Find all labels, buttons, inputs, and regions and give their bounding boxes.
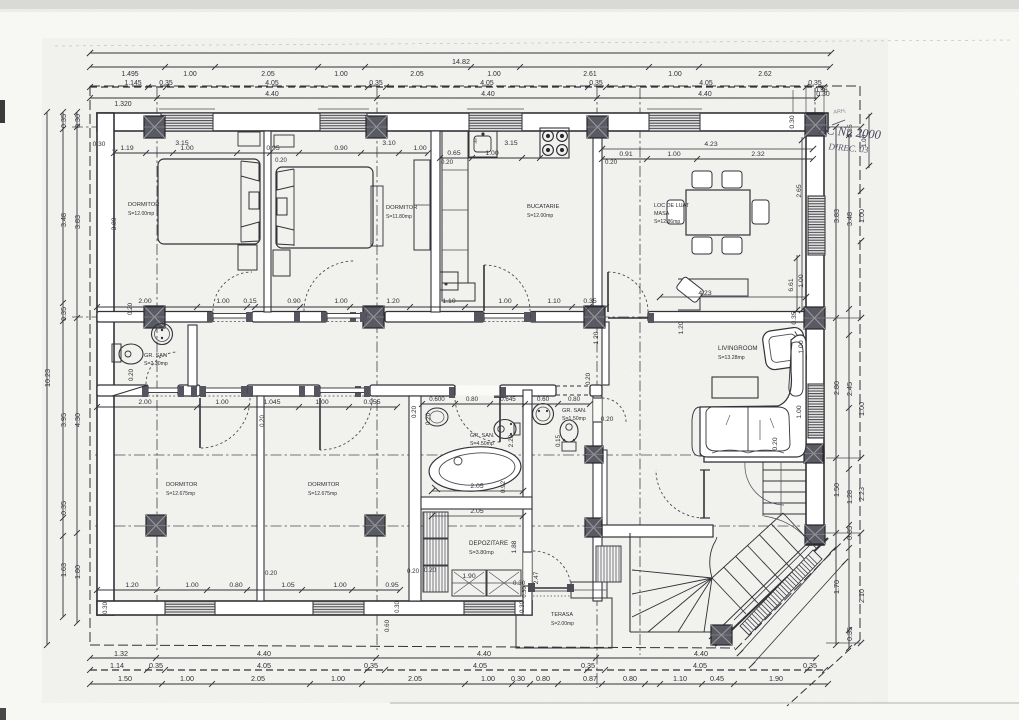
- svg-text:3.48: 3.48: [59, 213, 68, 227]
- svg-text:0.20: 0.20: [275, 158, 287, 164]
- svg-text:1.00: 1.00: [331, 674, 345, 683]
- svg-text:4.23: 4.23: [704, 141, 717, 148]
- svg-text:0.20: 0.20: [585, 372, 592, 385]
- svg-text:S=2.00mp: S=2.00mp: [551, 621, 574, 627]
- svg-text:1.10: 1.10: [673, 674, 687, 683]
- svg-text:2.23: 2.23: [857, 487, 866, 501]
- svg-text:4.05: 4.05: [480, 80, 494, 87]
- svg-text:1.80: 1.80: [73, 565, 82, 579]
- svg-text:0.30: 0.30: [102, 601, 109, 614]
- svg-text:DORMITOR: DORMITOR: [308, 482, 339, 488]
- svg-text:1.28: 1.28: [845, 490, 854, 504]
- svg-text:1.32: 1.32: [114, 649, 128, 658]
- svg-text:2.05: 2.05: [410, 71, 424, 78]
- svg-text:LOC DE LUAT: LOC DE LUAT: [654, 203, 690, 209]
- svg-text:0.30: 0.30: [395, 601, 401, 613]
- svg-text:2.45: 2.45: [845, 382, 854, 396]
- svg-text:4.05: 4.05: [473, 661, 487, 670]
- svg-text:1.320: 1.320: [114, 101, 131, 108]
- svg-text:0.80: 0.80: [466, 396, 479, 403]
- svg-text:0.30: 0.30: [511, 674, 525, 683]
- svg-text:0.91: 0.91: [619, 151, 632, 158]
- svg-text:GR. SAN.: GR. SAN.: [470, 433, 495, 439]
- svg-text:1.00: 1.00: [334, 298, 347, 305]
- svg-text:2.05: 2.05: [470, 508, 483, 515]
- svg-text:1.00: 1.00: [185, 582, 198, 589]
- svg-text:2.32: 2.32: [751, 151, 764, 158]
- svg-text:0.15: 0.15: [243, 298, 256, 305]
- svg-text:DORMITOR: DORMITOR: [128, 202, 159, 208]
- svg-text:0.45: 0.45: [710, 674, 724, 683]
- svg-text:0.35: 0.35: [583, 298, 596, 305]
- svg-text:6.61: 6.61: [788, 278, 795, 291]
- svg-text:3.15: 3.15: [175, 140, 188, 147]
- svg-text:S=12.675mp: S=12.675mp: [308, 491, 337, 497]
- svg-text:S=12.675mp: S=12.675mp: [166, 491, 195, 497]
- svg-text:LIVINGROOM: LIVINGROOM: [718, 345, 758, 352]
- svg-text:1.00: 1.00: [798, 274, 805, 287]
- svg-text:DEPOZITARE: DEPOZITARE: [469, 540, 508, 547]
- svg-text:14.82: 14.82: [452, 57, 470, 66]
- svg-text:1.05: 1.05: [281, 582, 294, 589]
- svg-text:BUCATARIE: BUCATARIE: [527, 204, 559, 210]
- svg-text:1.145: 1.145: [124, 80, 141, 87]
- svg-text:S=12.00mp: S=12.00mp: [128, 211, 154, 217]
- svg-text:0.80: 0.80: [536, 674, 550, 683]
- svg-text:0.30: 0.30: [93, 141, 106, 148]
- svg-text:1.20: 1.20: [125, 582, 138, 589]
- svg-text:2.61: 2.61: [583, 71, 597, 78]
- svg-text:0.35: 0.35: [59, 307, 68, 321]
- svg-text:0.600: 0.600: [429, 396, 445, 403]
- svg-text:0.35: 0.35: [589, 80, 603, 87]
- svg-text:10.23: 10.23: [43, 369, 52, 387]
- svg-text:0.20: 0.20: [425, 412, 432, 425]
- svg-text:0.30: 0.30: [522, 586, 528, 597]
- svg-text:TERASA: TERASA: [551, 612, 573, 618]
- svg-text:S=13.28mp: S=13.28mp: [718, 355, 745, 361]
- svg-text:1.10: 1.10: [442, 298, 455, 305]
- svg-text:2.05: 2.05: [408, 674, 422, 683]
- svg-text:2.00: 2.00: [138, 399, 151, 406]
- svg-text:4.23: 4.23: [698, 290, 711, 297]
- svg-text:1.495: 1.495: [121, 71, 138, 78]
- svg-text:0.20: 0.20: [601, 416, 614, 423]
- svg-text:0.35: 0.35: [803, 661, 817, 670]
- svg-text:0.35: 0.35: [59, 501, 68, 515]
- svg-text:0.35: 0.35: [59, 114, 68, 128]
- svg-text:S=4.50mp: S=4.50mp: [470, 441, 494, 447]
- svg-text:0.20: 0.20: [128, 368, 135, 381]
- svg-text:0.36: 0.36: [814, 87, 827, 94]
- svg-text:MASA: MASA: [654, 211, 670, 217]
- svg-text:0.30: 0.30: [519, 600, 526, 613]
- svg-text:DORMITOR: DORMITOR: [166, 482, 197, 488]
- svg-text:0.20: 0.20: [127, 302, 134, 315]
- svg-text:S=2.30mp: S=2.30mp: [144, 361, 168, 367]
- svg-text:1.14: 1.14: [110, 661, 124, 670]
- svg-text:1.00: 1.00: [180, 674, 194, 683]
- svg-text:1.00: 1.00: [487, 71, 501, 78]
- svg-text:0.955: 0.955: [363, 399, 380, 406]
- svg-text:0.20: 0.20: [265, 570, 278, 577]
- svg-text:0.35: 0.35: [808, 80, 822, 87]
- svg-text:0.90: 0.90: [287, 298, 300, 305]
- svg-text:2.10: 2.10: [857, 589, 866, 603]
- svg-text:0.90: 0.90: [334, 145, 347, 152]
- svg-text:S=3.80mp: S=3.80mp: [469, 550, 494, 556]
- svg-text:1.50: 1.50: [118, 674, 132, 683]
- svg-text:4.40: 4.40: [481, 91, 495, 98]
- svg-text:S=1.50mp: S=1.50mp: [562, 416, 586, 422]
- svg-text:1.90: 1.90: [769, 674, 783, 683]
- svg-text:GR. SAN.: GR. SAN.: [562, 408, 587, 414]
- svg-text:S=11.80mp: S=11.80mp: [386, 214, 412, 220]
- svg-text:0.20: 0.20: [605, 159, 618, 166]
- svg-text:0.30: 0.30: [789, 115, 796, 128]
- svg-text:0.30: 0.30: [73, 114, 82, 128]
- svg-text:3.83: 3.83: [73, 215, 82, 229]
- svg-text:3.15: 3.15: [504, 140, 517, 147]
- svg-text:0.92: 0.92: [500, 480, 507, 493]
- svg-text:0.20: 0.20: [772, 437, 779, 450]
- svg-text:0.80: 0.80: [568, 396, 581, 403]
- svg-text:1.00: 1.00: [334, 71, 348, 78]
- svg-text:0.30: 0.30: [513, 580, 526, 587]
- svg-text:1.63: 1.63: [59, 563, 68, 577]
- svg-text:1.00: 1.00: [481, 674, 495, 683]
- svg-text:3.48: 3.48: [845, 212, 854, 226]
- svg-text:0.645: 0.645: [500, 396, 516, 403]
- svg-text:3.80: 3.80: [111, 217, 118, 230]
- svg-text:q: q: [473, 138, 476, 144]
- svg-text:DORMITOR: DORMITOR: [386, 205, 417, 211]
- svg-text:1.00: 1.00: [485, 150, 498, 157]
- svg-text:1.00: 1.00: [857, 402, 866, 416]
- svg-text:1.19: 1.19: [120, 145, 133, 152]
- svg-text:1.045: 1.045: [263, 399, 280, 406]
- svg-text:2.80: 2.80: [832, 381, 841, 395]
- svg-text:4.40: 4.40: [694, 649, 708, 658]
- svg-text:2.05: 2.05: [251, 674, 265, 683]
- svg-text:0.35: 0.35: [581, 661, 595, 670]
- svg-text:0.65: 0.65: [447, 150, 460, 157]
- svg-text:0.15: 0.15: [555, 434, 562, 447]
- svg-text:1.20: 1.20: [678, 321, 685, 334]
- svg-text:1.00: 1.00: [216, 298, 229, 305]
- svg-text:1.50: 1.50: [832, 483, 841, 497]
- svg-text:4.40: 4.40: [265, 91, 279, 98]
- svg-text:3.83: 3.83: [832, 209, 841, 223]
- svg-text:1.00: 1.00: [315, 399, 328, 406]
- svg-text:GR. SAN: GR. SAN: [144, 353, 167, 359]
- svg-text:0.20: 0.20: [411, 405, 418, 418]
- svg-text:2.05: 2.05: [470, 483, 483, 490]
- svg-text:3.95: 3.95: [59, 413, 68, 427]
- svg-text:4.40: 4.40: [257, 649, 271, 658]
- svg-text:0.80: 0.80: [623, 674, 637, 683]
- svg-text:0.20: 0.20: [441, 159, 454, 166]
- svg-text:2.05: 2.05: [261, 71, 275, 78]
- svg-text:0.35: 0.35: [845, 627, 854, 641]
- svg-text:S=12.86mp: S=12.86mp: [654, 219, 680, 225]
- svg-text:1.00: 1.00: [183, 71, 197, 78]
- svg-text:1.90: 1.90: [462, 573, 475, 580]
- svg-text:1.00: 1.00: [498, 298, 511, 305]
- svg-text:1.20: 1.20: [593, 331, 600, 344]
- svg-text:0.60: 0.60: [537, 396, 550, 403]
- svg-text:1.20: 1.20: [386, 298, 399, 305]
- svg-text:2.47: 2.47: [533, 571, 540, 584]
- svg-text:S=12.00mp: S=12.00mp: [527, 213, 553, 219]
- svg-text:0.60: 0.60: [384, 619, 391, 632]
- svg-text:1.00: 1.00: [668, 71, 682, 78]
- svg-text:2.20: 2.20: [508, 434, 515, 447]
- svg-text:0.95: 0.95: [385, 582, 398, 589]
- svg-text:3.10: 3.10: [382, 140, 395, 147]
- svg-text:4.05: 4.05: [257, 661, 271, 670]
- svg-text:4.40: 4.40: [698, 91, 712, 98]
- svg-text:1.70: 1.70: [832, 580, 841, 594]
- svg-text:0.95: 0.95: [266, 145, 279, 152]
- svg-text:1.00: 1.00: [333, 582, 346, 589]
- svg-text:1.88: 1.88: [511, 540, 518, 553]
- svg-text:0.20: 0.20: [407, 568, 420, 575]
- svg-text:2.00: 2.00: [138, 298, 151, 305]
- svg-text:1.00: 1.00: [796, 405, 803, 418]
- svg-text:1.00: 1.00: [667, 151, 680, 158]
- svg-text:4.05: 4.05: [699, 80, 713, 87]
- svg-text:1.10: 1.10: [547, 298, 560, 305]
- svg-text:0.80: 0.80: [229, 582, 242, 589]
- svg-text:1.00: 1.00: [215, 399, 228, 406]
- svg-text:2.62: 2.62: [758, 71, 772, 78]
- svg-text:4.40: 4.40: [477, 649, 491, 658]
- svg-text:0.87: 0.87: [583, 674, 597, 683]
- svg-text:0.20: 0.20: [424, 567, 437, 574]
- svg-text:0.20: 0.20: [260, 415, 266, 427]
- svg-text:1.00: 1.00: [413, 145, 426, 152]
- svg-text:4.05: 4.05: [265, 80, 279, 87]
- svg-text:1.00: 1.00: [857, 209, 866, 223]
- svg-text:4.30: 4.30: [73, 413, 82, 427]
- svg-text:0.35: 0.35: [149, 661, 163, 670]
- svg-text:0.35: 0.35: [159, 80, 173, 87]
- svg-text:0.35: 0.35: [369, 80, 383, 87]
- svg-text:1.00: 1.00: [798, 340, 805, 353]
- svg-text:4.05: 4.05: [693, 661, 707, 670]
- svg-text:0.35: 0.35: [364, 661, 378, 670]
